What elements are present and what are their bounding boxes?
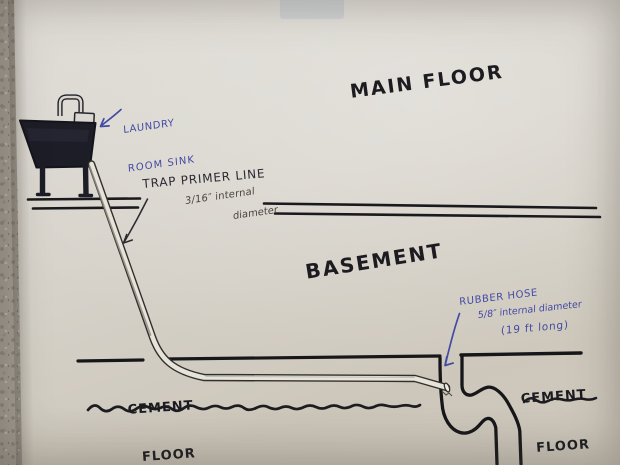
tape-piece: [280, 0, 344, 19]
sink-faucet: [60, 97, 81, 116]
sink-basin: [20, 121, 96, 168]
sink-basin-sheen: [27, 128, 89, 142]
cement-floor-right-line1: CEMENT: [520, 387, 587, 408]
rubber-hose-arrow-icon: [445, 314, 460, 366]
sink-faucet-highlight: [60, 97, 81, 116]
sink-leg: [38, 167, 92, 196]
main-floor-line: [28, 199, 600, 218]
hose-open-end: [443, 382, 451, 392]
cement-floor-left-line2: FLOOR: [142, 446, 198, 465]
cement-floor-left-line1: CEMENT: [127, 398, 194, 419]
broken-floor-mark: [443, 392, 452, 396]
basement-label: BASEMENT: [304, 240, 444, 282]
cement-floor-left-label: CEMENT FLOOR: [125, 366, 200, 465]
laundry-sink-arrow-icon: [101, 110, 122, 127]
sink-faucet-base: [74, 113, 94, 126]
trap-primer-size-line2: diameter: [233, 206, 278, 223]
rubber-hose-length: (19 ft long): [501, 320, 569, 337]
table-surface-edge: [0, 0, 24, 465]
basement-floor-line: [78, 353, 581, 361]
laundry-sink-label-line1: LAUNDRY: [123, 114, 193, 137]
trap-primer-arrow-icon: [124, 199, 148, 243]
cement-floor-right-line2: FLOOR: [536, 437, 591, 457]
cement-floor-right-label: CEMENT FLOOR: [518, 354, 593, 465]
hand-drawn-plumbing-diagram: MAIN FLOOR BASEMENT LAUNDRY ROOM SINK TR…: [0, 0, 620, 465]
main-floor-label: MAIN FLOOR: [349, 63, 505, 103]
floor-drain-trap: [440, 356, 521, 464]
laundry-sink: [20, 97, 96, 196]
